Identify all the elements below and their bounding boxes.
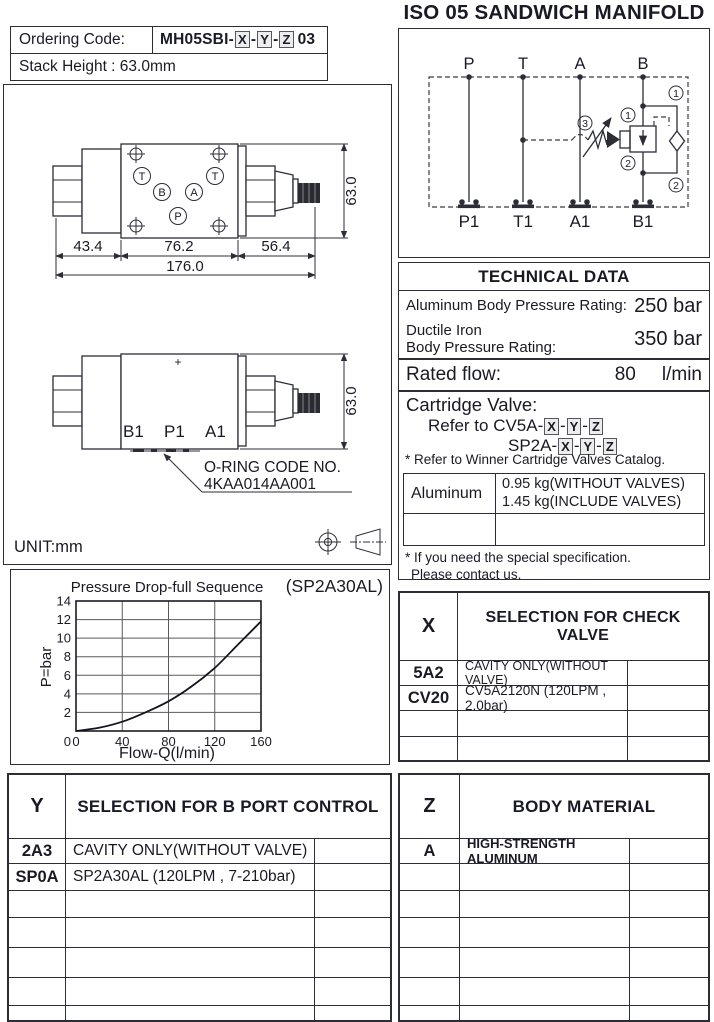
ductile-pressure-label: Ductile Iron Body Pressure Rating: xyxy=(406,323,634,357)
chart-title: Pressure Drop-full Sequence xyxy=(71,579,264,596)
z-table-row-5 xyxy=(400,978,708,1006)
port-b1-label: B1 xyxy=(123,422,144,441)
y-table-title: SELECTION FOR B PORT CONTROL xyxy=(66,775,390,838)
x-table-row-1: CV20 CV5A2120N (120LPM , 2.0bar) xyxy=(400,686,708,711)
ordering-code-value: MH05SBI-X-Y-Z03 xyxy=(153,31,315,49)
oring-callout: O-RING CODE NO. 4KAA014AA001 xyxy=(164,454,352,493)
svg-text:6: 6 xyxy=(64,668,71,683)
svg-text:4: 4 xyxy=(64,686,71,701)
oring-code-number: 4KAA014AA001 xyxy=(204,476,316,493)
z-table-row-4 xyxy=(400,948,708,978)
svg-text:80: 80 xyxy=(161,734,175,749)
hydraulic-schematic-svg: P T A B xyxy=(399,29,708,256)
catalog-note: * Refer to Winner Cartridge Valves Catal… xyxy=(399,450,709,471)
callout-2b: 2 xyxy=(673,180,679,192)
port-a1-label: A1 xyxy=(205,422,226,441)
cartridge-valve-section: Cartridge Valve: Refer to CV5A-X-Y-Z SP2… xyxy=(399,392,709,450)
callout-2a: 2 xyxy=(625,158,631,170)
chart-ylabel: P=bar xyxy=(38,647,55,687)
dim-76-2: 76.2 xyxy=(164,238,193,255)
port-label-B1: B1 xyxy=(633,212,654,231)
chart-annotation: (SP2A30AL) xyxy=(286,576,383,596)
dim-176-0: 176.0 xyxy=(166,258,204,275)
y-table-key: Y xyxy=(9,775,66,838)
svg-text:12: 12 xyxy=(57,612,71,627)
code-box-z: Z xyxy=(279,31,293,48)
y-table-row-2 xyxy=(9,891,390,918)
aluminum-pressure-value: 250 bar xyxy=(634,295,702,318)
manifold-boundary xyxy=(429,77,688,207)
weight-material: Aluminum xyxy=(404,474,496,513)
svg-text:14: 14 xyxy=(57,594,71,609)
svg-text:8: 8 xyxy=(64,649,71,664)
svg-text:40: 40 xyxy=(115,734,129,749)
hydraulic-schematic-box: P T A B xyxy=(398,28,710,258)
dim-63-0-side: 63.0 xyxy=(343,386,360,415)
ordering-code-label: Ordering Code: xyxy=(11,27,153,53)
stack-height: Stack Height : 63.0mm xyxy=(11,54,327,81)
port-label-A: A xyxy=(574,55,585,73)
x-table-row-2 xyxy=(400,711,708,737)
svg-text:160: 160 xyxy=(250,734,272,749)
svg-text:2: 2 xyxy=(64,705,71,720)
y-table-row-0: 2A3 CAVITY ONLY(WITHOUT VALVE) xyxy=(9,839,390,864)
z-table-row-0: A HIGH-STRENGTH ALUMINUM xyxy=(400,839,708,864)
bottom-port-labels: B1 P1 A1 xyxy=(123,422,226,441)
port-label-P: P xyxy=(463,55,474,73)
svg-text:120: 120 xyxy=(204,734,226,749)
pressure-drop-chart-svg: Pressure Drop-full Sequence (SP2A30AL) P… xyxy=(11,570,388,763)
projection-target-icon xyxy=(315,529,341,555)
callout-1a: 1 xyxy=(673,88,679,100)
x-table-row-3 xyxy=(400,737,708,760)
rated-flow-value: 80 xyxy=(615,364,636,386)
z-table-row-6 xyxy=(400,1006,708,1020)
ductile-pressure-value: 350 bar xyxy=(634,328,702,351)
port-a: A xyxy=(190,187,198,199)
port-label-P1: P1 xyxy=(459,212,480,231)
rated-flow-label: Rated flow: xyxy=(406,364,615,385)
cartridge-ref-1: Refer to CV5A-X-Y-Z xyxy=(428,416,702,436)
dim-43-4: 43.4 xyxy=(73,238,102,255)
svg-text:0: 0 xyxy=(72,734,79,749)
port-b: B xyxy=(158,187,165,199)
check-valve-bypass xyxy=(643,106,685,173)
port-p1-label: P1 xyxy=(164,422,185,441)
port-dots xyxy=(466,74,646,176)
port-label-B: B xyxy=(637,55,648,73)
pilot-line xyxy=(523,135,588,141)
weight-empty-row xyxy=(404,514,704,545)
page-title: ISO 05 SANDWICH MANIFOLD xyxy=(398,0,710,26)
x-selection-table: X SELECTION FOR CHECK VALVE 5A2 CAVITY O… xyxy=(398,591,710,762)
y-table-row-5 xyxy=(9,978,390,1006)
code-box-x: X xyxy=(235,31,250,48)
cartridge-valve-title: Cartridge Valve: xyxy=(406,394,702,416)
dim-63-0-top: 63.0 xyxy=(343,176,360,205)
y-table-row-3 xyxy=(9,918,390,948)
side-view-drawing: + B1 P1 A1 O-RING CODE NO. xyxy=(53,354,360,493)
ordering-code-box: Ordering Code: MH05SBI-X-Y-Z03 Stack Hei… xyxy=(10,26,328,81)
port-label-A1: A1 xyxy=(570,212,591,231)
code-suffix: 03 xyxy=(298,31,316,49)
y-table-row-1: SP0A SP2A30AL (120LPM , 7-210bar) xyxy=(9,864,390,891)
oring-code-title: O-RING CODE NO. xyxy=(204,459,341,476)
technical-data-header: TECHNICAL DATA xyxy=(399,263,709,291)
callout-3: 3 xyxy=(582,118,588,130)
schematic-bottom-labels: P1 T1 A1 B1 xyxy=(459,212,654,231)
port-p: P xyxy=(174,211,181,223)
callout-1b: 1 xyxy=(625,110,631,122)
port-label-T: T xyxy=(518,55,528,73)
weight-values: 0.95 kg(WITHOUT VALVES) 1.45 kg(INCLUDE … xyxy=(496,474,704,513)
aluminum-pressure-label: Aluminum Body Pressure Rating: xyxy=(406,298,634,315)
svg-text:10: 10 xyxy=(57,631,71,646)
y-selection-table: Y SELECTION FOR B PORT CONTROL 2A3 CAVIT… xyxy=(7,773,392,1022)
technical-data-box: TECHNICAL DATA Aluminum Body Pressure Ra… xyxy=(398,262,710,580)
x-table-title: SELECTION FOR CHECK VALVE xyxy=(458,593,708,660)
x-table-key: X xyxy=(400,593,458,660)
special-spec-note: * If you need the special specification.… xyxy=(399,548,709,586)
svg-text:0: 0 xyxy=(64,734,71,749)
y-table-row-4 xyxy=(9,948,390,978)
dimension-drawings-panel: T T B A P 43.4 76.2 56.4 xyxy=(3,84,392,565)
datasheet-page: ISO 05 SANDWICH MANIFOLD Ordering Code: … xyxy=(0,0,714,1022)
top-view-drawing: T T B A P 43.4 76.2 56.4 xyxy=(53,144,360,279)
port-label-T1: T1 xyxy=(513,212,533,231)
schematic-top-labels: P T A B xyxy=(463,55,648,73)
z-table-row-1 xyxy=(400,864,708,891)
sequence-valve-symbol xyxy=(583,117,669,157)
weight-table: Aluminum 0.95 kg(WITHOUT VALVES) 1.45 kg… xyxy=(403,473,705,546)
code-box-y: Y xyxy=(257,31,272,48)
center-mark: + xyxy=(174,355,181,369)
rated-flow-unit: l/min xyxy=(662,364,702,386)
z-table-row-2 xyxy=(400,891,708,918)
z-table-key: Z xyxy=(400,775,460,838)
projection-cone-icon xyxy=(350,529,386,555)
z-table-row-3 xyxy=(400,918,708,948)
port-t-left: T xyxy=(139,171,146,183)
pressure-drop-chart: Pressure Drop-full Sequence (SP2A30AL) P… xyxy=(10,569,390,765)
technical-drawing-svg: T T B A P 43.4 76.2 56.4 xyxy=(4,85,390,563)
unit-label: UNIT:mm xyxy=(14,538,83,556)
dim-56-4: 56.4 xyxy=(261,238,290,255)
port-t-right: T xyxy=(212,171,219,183)
y-table-row-6 xyxy=(9,1006,390,1020)
z-table-title: BODY MATERIAL xyxy=(460,775,708,838)
code-prefix: MH05SBI- xyxy=(160,31,234,49)
z-selection-table: Z BODY MATERIAL A HIGH-STRENGTH ALUMINUM xyxy=(398,773,710,1022)
